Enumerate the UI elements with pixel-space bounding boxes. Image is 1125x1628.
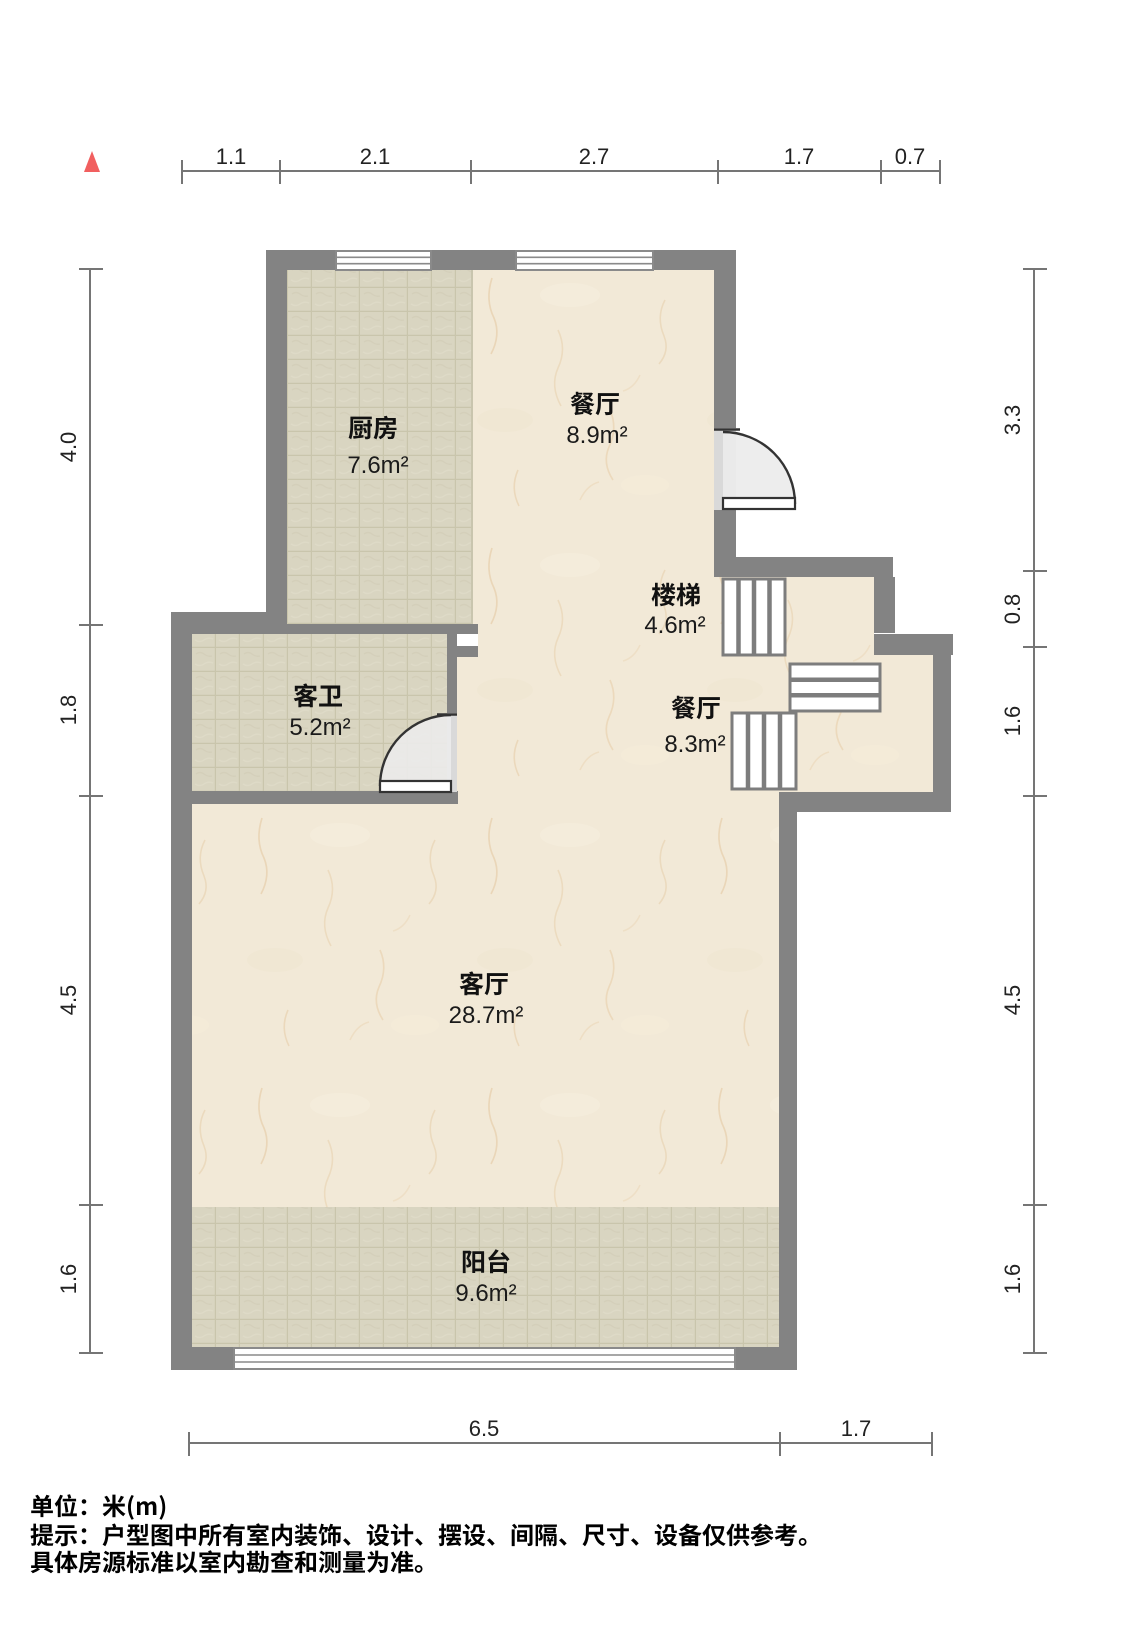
- svg-text:2.7: 2.7: [579, 144, 610, 169]
- svg-text:1.8: 1.8: [56, 695, 81, 726]
- svg-text:5.2m²: 5.2m²: [289, 714, 350, 741]
- svg-text:1.6: 1.6: [56, 1264, 81, 1295]
- svg-text:8.9m²: 8.9m²: [566, 422, 627, 449]
- svg-text:2.1: 2.1: [360, 144, 391, 169]
- svg-text:0.8: 0.8: [1000, 594, 1025, 625]
- svg-text:1.6: 1.6: [1000, 706, 1025, 737]
- svg-text:4.0: 4.0: [56, 432, 81, 463]
- svg-text:4.6m²: 4.6m²: [644, 612, 705, 639]
- svg-text:1.1: 1.1: [216, 144, 247, 169]
- svg-text:1.6: 1.6: [1000, 1264, 1025, 1295]
- svg-text:1.7: 1.7: [784, 144, 815, 169]
- svg-text:4.5: 4.5: [56, 985, 81, 1016]
- svg-text:6.5: 6.5: [469, 1416, 500, 1441]
- svg-text:28.7m²: 28.7m²: [449, 1002, 524, 1029]
- svg-text:3.3: 3.3: [1000, 405, 1025, 436]
- svg-text:8.3m²: 8.3m²: [664, 731, 725, 758]
- svg-text:9.6m²: 9.6m²: [455, 1280, 516, 1307]
- svg-text:0.7: 0.7: [895, 144, 926, 169]
- svg-text:7.6m²: 7.6m²: [347, 452, 408, 479]
- svg-text:1.7: 1.7: [841, 1416, 872, 1441]
- svg-text:4.5: 4.5: [1000, 985, 1025, 1016]
